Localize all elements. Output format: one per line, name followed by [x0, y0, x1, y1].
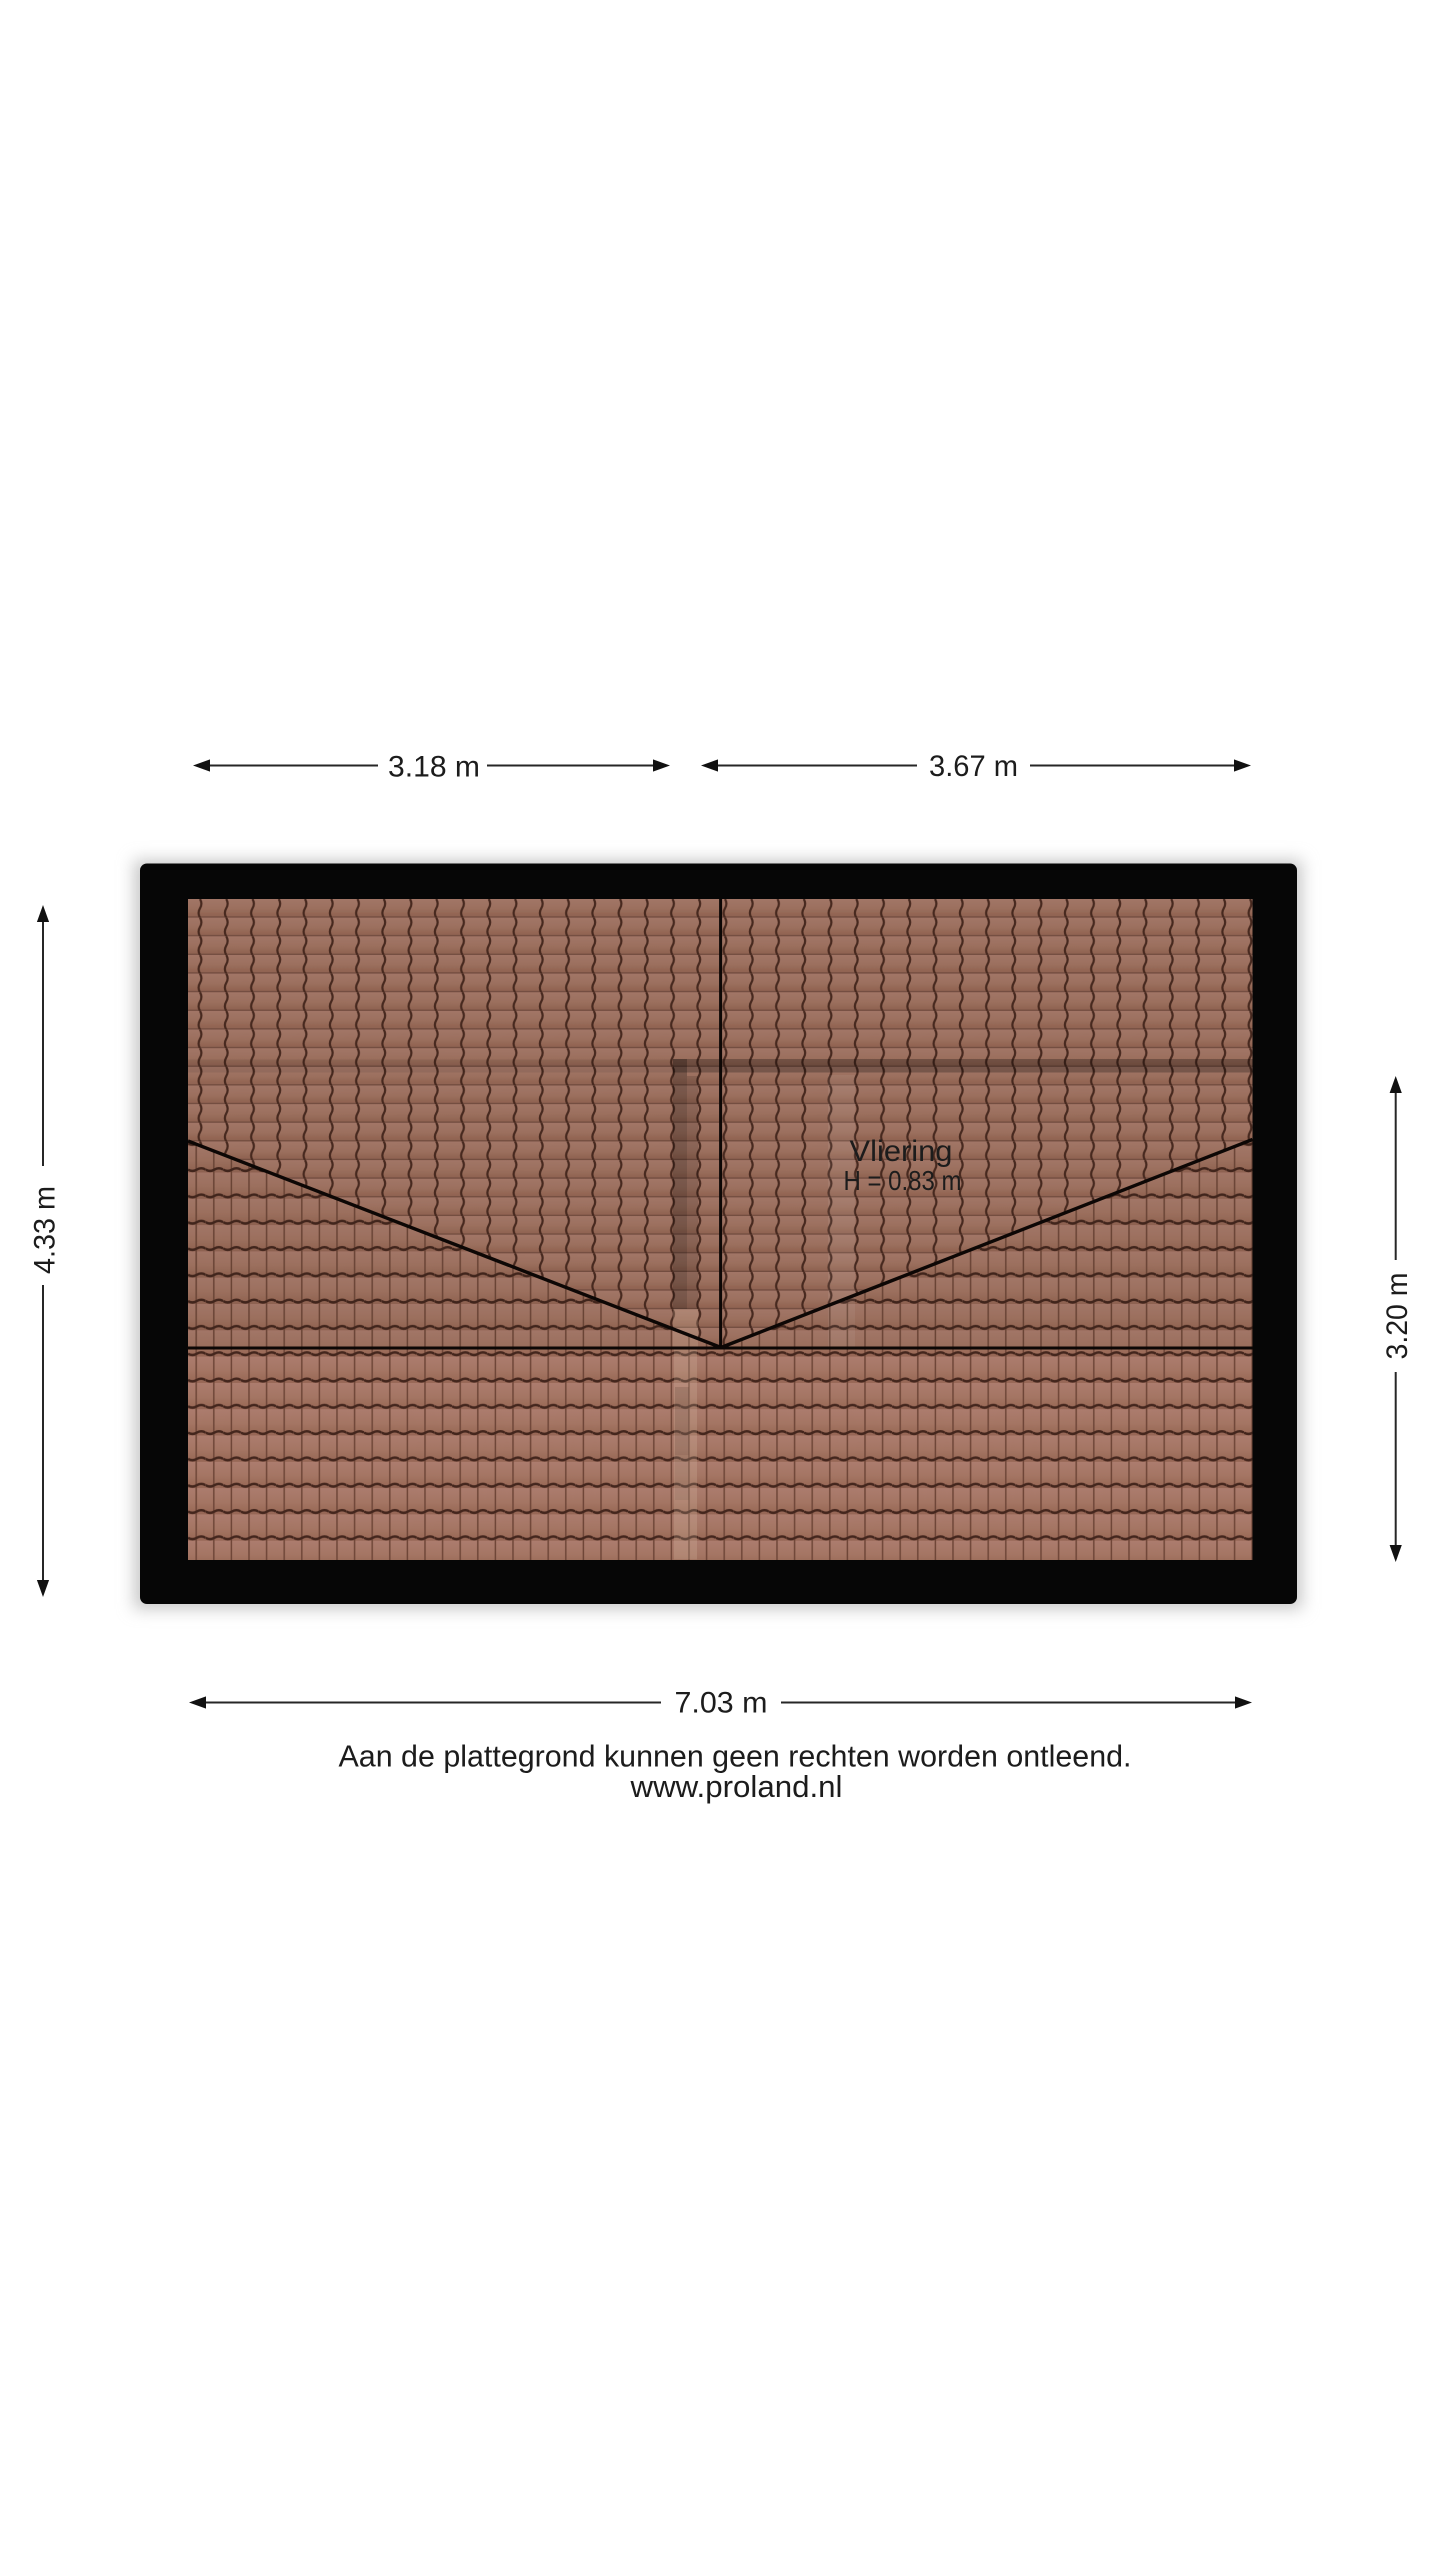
svg-text:www.proland.nl: www.proland.nl — [629, 1769, 842, 1804]
svg-text:3.67 m: 3.67 m — [929, 750, 1018, 783]
svg-text:3.20 m: 3.20 m — [1381, 1273, 1414, 1360]
svg-text:H = 0.83 m: H = 0.83 m — [844, 1165, 962, 1196]
svg-text:7.03 m: 7.03 m — [675, 1687, 768, 1720]
svg-text:Vliering: Vliering — [850, 1135, 953, 1168]
svg-text:3.18 m: 3.18 m — [388, 751, 480, 784]
svg-text:4.33 m: 4.33 m — [29, 1186, 62, 1274]
